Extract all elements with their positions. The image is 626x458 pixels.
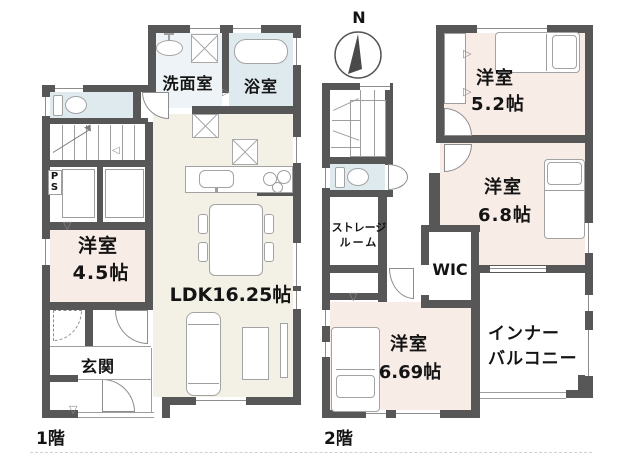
wall [322,190,393,197]
closet-box [105,169,144,218]
wall [385,83,393,165]
door-arc-hall [115,310,148,344]
sofa-arm-line [188,383,219,384]
window [585,295,593,311]
wall [471,273,480,418]
wall [322,265,382,273]
bed-line [546,34,547,71]
wall [293,25,301,405]
compass-icon [330,24,388,82]
chair [198,242,208,262]
door-arc-room669 [389,268,414,299]
western-669-name: 洋室 [379,330,439,356]
chair [264,214,274,234]
low-table [242,327,269,380]
wall [85,310,93,347]
door-arc-front-door [102,379,135,412]
wall [42,118,148,124]
wall [42,160,148,167]
wall [192,106,301,114]
wall [322,83,330,418]
window [585,223,593,253]
inner-balcony-label-line2: バルコニー [488,344,578,369]
wall [133,92,141,118]
inner-balcony-label-line1: インナー [488,319,560,344]
western-52-size: 5.2帖 [443,90,553,116]
wall [578,375,593,398]
stair-up-arrow [53,129,91,153]
sofa-arm-line [188,324,219,325]
wall [436,135,593,143]
closet-fold-icon: ▽ [349,291,357,302]
western-669-size: 6.69帖 [370,358,450,384]
storage-room-label-line2: ルーム [326,234,392,250]
bed-pillow [552,35,577,69]
western-68-name: 洋室 [458,173,548,199]
window [233,25,261,33]
stair-tread [110,125,111,160]
floor1-label: 1階 [36,424,65,449]
kitchen-sink-icon [199,170,234,188]
door-arc-toilet-1f [142,92,169,119]
entrance-ldk-divider [151,348,152,412]
compass: N [330,6,388,82]
stove-burner-icon [272,182,283,193]
window [322,342,330,357]
stair-landing-box [350,100,386,157]
wall [429,173,440,232]
toilet-tank-icon [53,95,63,116]
western-45-name: 洋室 [50,231,146,258]
window [322,310,330,326]
refrigerator-space-icon [192,114,219,138]
faucet-icon [168,34,170,41]
closet-fold-icon: ◁ [112,146,120,156]
closet-fold-icon: ▽ [63,220,71,231]
wall [42,302,153,310]
wall [436,25,444,143]
stair-tread [332,120,360,121]
window [42,239,50,265]
wic-label: WIC [421,260,479,279]
washroom-label: 洗面室 [152,70,224,94]
stair-tread [98,125,99,160]
balcony-railing [480,392,566,399]
window [42,97,50,116]
stair-tread [62,125,63,160]
wall [42,222,153,230]
window [190,25,220,33]
window [293,38,301,65]
toilet-bowl-icon [65,96,87,114]
window [196,397,246,405]
stair-tread [74,125,75,160]
floor-plan: ▷ ▽ PS ▽ ◁ [0,0,626,458]
bottom-guide-line [30,452,592,453]
door-arc-toilet-2f [388,164,408,190]
western-45-size: 4.5帖 [50,258,152,285]
storage-room-label-line1: ストレージ [326,219,392,235]
dining-table [209,204,263,276]
bathroom-label: 浴室 [229,73,293,97]
window [585,330,593,376]
tv [280,323,288,378]
floor2-label: 2階 [324,424,353,449]
window [396,410,440,418]
washer-pan-icon [191,34,218,63]
pantry-space-icon [232,139,258,165]
toilet-bowl-icon [347,168,369,186]
western-68-size: 6.8帖 [455,201,555,227]
stair-tread [374,90,375,157]
entrance-step-line [78,379,151,380]
window [322,168,330,188]
entrance-label: 玄関 [60,353,136,377]
wall [97,167,103,222]
kitchen-faucet-icon [215,188,218,193]
western-52-name: 洋室 [445,64,545,90]
ldk-label: LDK16.25帖 [158,280,303,307]
entrance-step-line [50,346,151,347]
window [360,83,390,90]
chair [198,214,208,234]
door-arc-entrance-closet [53,310,82,341]
window [55,85,83,92]
stair-tread [134,125,135,160]
bed-line [545,190,584,191]
stair-tread [331,147,360,148]
toilet-tank-icon [335,167,345,188]
closet-fold-icon: ▷ [463,48,471,59]
wall [421,295,429,308]
stair-tread [122,125,123,160]
closet-box [62,169,95,218]
chair [264,242,274,262]
window [490,266,546,272]
porch-edge [78,412,154,418]
stair-tread [360,90,361,157]
wall [162,397,170,418]
washbasin-icon [156,40,183,56]
bathtub-icon [234,39,288,64]
bed-pillow [547,162,582,185]
wall [322,157,393,164]
pipe-space-label: PS [49,171,60,193]
window [293,137,301,163]
porch-fold-icon: ▽ [69,404,77,415]
